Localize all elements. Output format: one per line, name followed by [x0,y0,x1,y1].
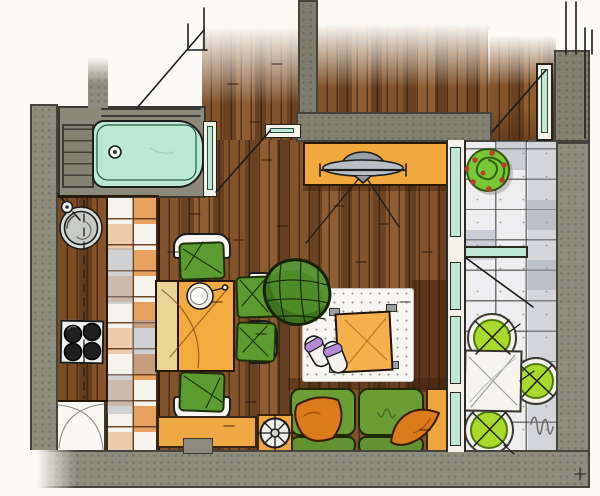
floor-shadow-beside-rug [412,280,446,392]
wall-right [556,142,590,452]
window-glass-segment [450,147,461,237]
wall-bottom [30,450,590,488]
wall-top-right [554,50,590,142]
patio-table [463,349,522,412]
dining-chair-top-seat [178,241,225,281]
tile-shading [107,374,132,414]
wall-left-fade [88,56,108,108]
top-right-window [536,63,553,141]
entry-door-symbol [102,8,207,116]
balcony-plant [466,148,510,192]
bathroom-storage-shelf [62,124,94,188]
door-glass [207,126,213,190]
kitchen-countertop [56,196,108,402]
sofa-back-cushion-right [358,388,424,436]
apartment-floorplan-illustration [0,0,600,496]
dining-chair-right2-seat [235,321,276,362]
sofa-back-cushion-left [290,388,356,436]
entry-door [265,124,301,138]
bathroom-door [203,121,217,197]
coffee-table [334,311,393,374]
sketch-fade [30,450,76,488]
window-glass-segment [450,316,461,384]
window-glass-segment [450,392,461,446]
window-glass-segment [450,262,461,310]
patio-chair-cushion [518,363,554,399]
cooktop [60,320,105,365]
sketch-fade [200,18,302,104]
kitchen-cabinet-floor [56,400,106,452]
tile-shading [107,248,132,304]
door-glass [270,128,294,133]
patio-chair-cushion [470,411,508,449]
bathroom [58,106,206,198]
bathtub [92,120,204,188]
window-glass [541,69,548,133]
sketch-fade [316,16,492,88]
tile-shading [132,320,157,374]
wall-top [296,112,492,142]
floor-step [183,438,213,454]
balcony-edge-shading [528,140,556,452]
wall-left [30,104,58,486]
sketch-fade [86,54,110,84]
dining-table [177,280,235,372]
balcony-door [464,246,528,258]
decor-plate-stand [257,414,293,452]
wall-entry-column [298,0,318,120]
dining-table-leaf [155,280,179,372]
dining-chair-bottom-seat [178,371,225,413]
upper-room-wood-fade [318,18,490,118]
sideboard [303,142,448,186]
sofa-side-table [426,388,448,452]
